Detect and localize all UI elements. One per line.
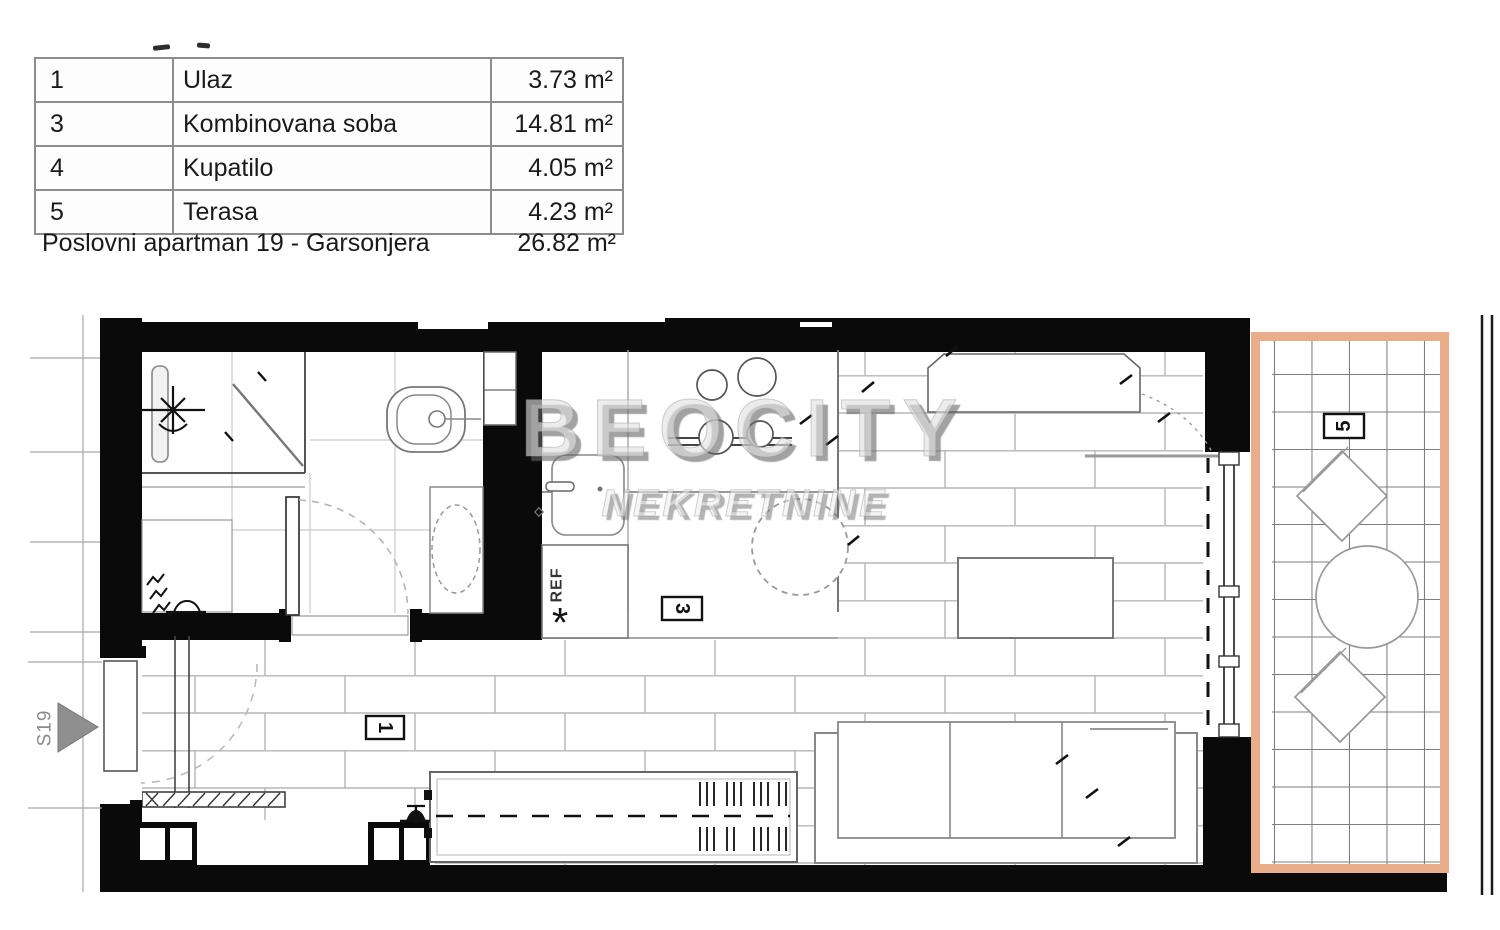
radiator bbox=[424, 772, 797, 862]
terrace-glass-door bbox=[1219, 452, 1239, 737]
room-label-living: 3 bbox=[671, 603, 693, 614]
terrace: 5 bbox=[1251, 332, 1449, 873]
floorplan-page: 1 Ulaz 3.73 m² 3 Kombinovana soba 14.81 … bbox=[0, 0, 1500, 930]
sofa-bed bbox=[815, 722, 1197, 863]
door-leaf bbox=[104, 661, 137, 771]
dimension-lines bbox=[28, 315, 102, 892]
washing-machine-icon bbox=[142, 520, 232, 613]
fridge-label: REF bbox=[549, 568, 566, 603]
room-label-entry: 1 bbox=[374, 722, 396, 733]
terrace-table bbox=[1316, 546, 1418, 648]
shower-panel bbox=[152, 366, 168, 462]
plot-boundary-lines bbox=[1482, 315, 1492, 895]
section-label: S19 bbox=[35, 710, 56, 747]
desk bbox=[958, 558, 1113, 638]
floorplan-drawing: REF * 3 1 bbox=[0, 0, 1500, 930]
door-leaf bbox=[286, 497, 299, 615]
section-arrow-icon bbox=[58, 703, 98, 752]
boiler-mark: * bbox=[552, 599, 568, 646]
duct-shaft bbox=[484, 352, 516, 425]
dining-table bbox=[752, 499, 848, 595]
section-marker: S19 bbox=[28, 315, 102, 892]
room-label-terrace: 5 bbox=[1333, 420, 1355, 431]
wardrobe bbox=[928, 354, 1140, 412]
washbasin-icon bbox=[430, 487, 483, 613]
